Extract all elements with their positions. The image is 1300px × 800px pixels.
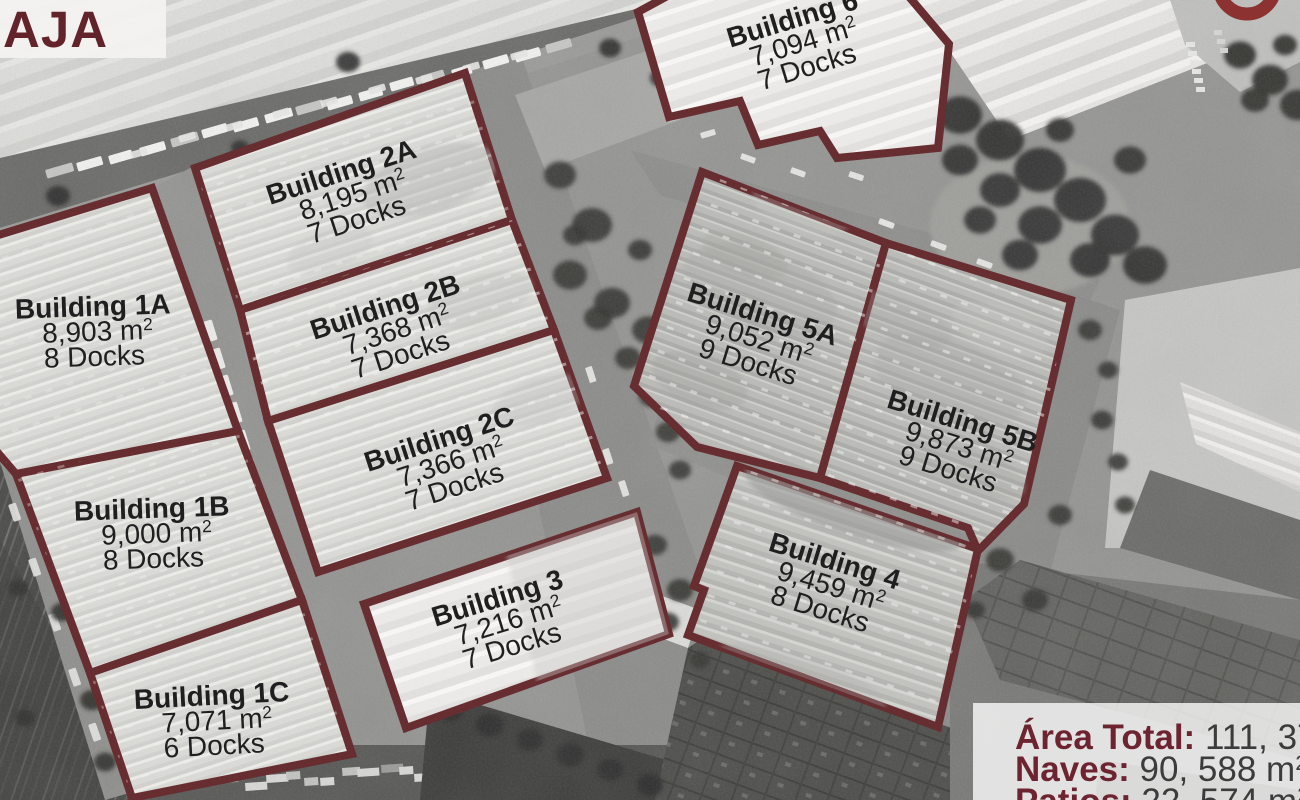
svg-text:AJA: AJA: [3, 1, 108, 58]
svg-text:6 Docks: 6 Docks: [163, 727, 266, 763]
svg-text:8 Docks: 8 Docks: [102, 541, 204, 576]
svg-text:8 Docks: 8 Docks: [43, 339, 145, 374]
svg-text:Patios: 22, 574 m2: Patios: 22, 574 m2: [1015, 782, 1300, 800]
